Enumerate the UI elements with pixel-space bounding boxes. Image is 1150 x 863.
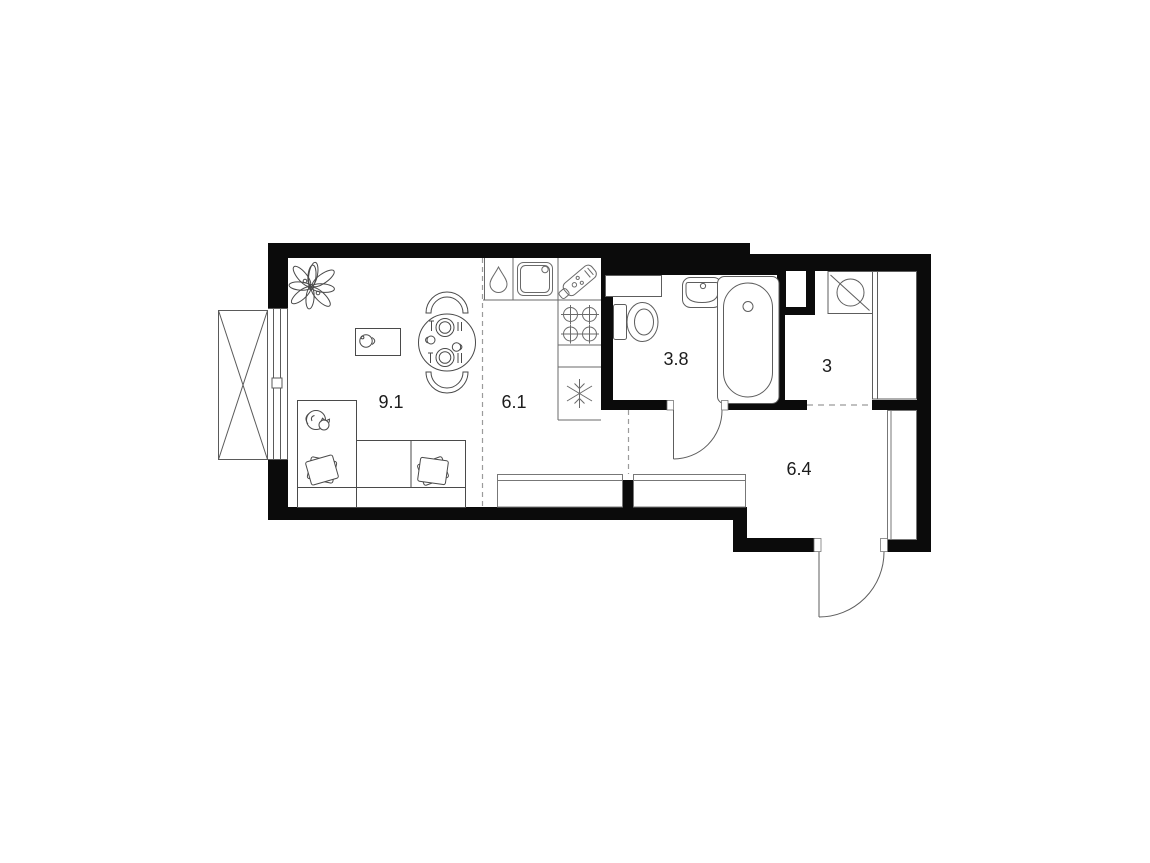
ventilation-shaft-interior: [786, 271, 806, 307]
pillow-right: [417, 456, 449, 486]
washbasin-icon: [683, 278, 722, 308]
room-label-bathroom: 3.8: [663, 349, 688, 369]
wall-right: [917, 254, 931, 552]
side-table: [356, 329, 401, 356]
bathroom-shelf: [606, 276, 662, 297]
closet-left: [498, 475, 623, 508]
hallway-wardrobe: [888, 411, 917, 540]
room-label-hallway: 6.4: [786, 459, 811, 479]
room-label-wardrobe: 3: [822, 356, 832, 376]
door-jamb: [722, 401, 729, 411]
door-jamb: [814, 539, 821, 552]
wall-room3-hall-stub: [872, 400, 917, 410]
washing-machine-icon: [828, 272, 873, 314]
wall-left-upper: [268, 243, 288, 308]
window-sash-divider: [272, 378, 282, 388]
closet-right: [634, 475, 746, 508]
wall-entrance-left: [747, 538, 815, 552]
toilet-icon: [614, 303, 659, 342]
canvas-background: [0, 0, 1150, 863]
wall-bottom-main: [268, 507, 747, 520]
room-label-kitchen: 6.1: [501, 392, 526, 412]
floor-plan: 9.1 6.1 3.8 3 6.4: [0, 0, 1150, 863]
door-jamb: [881, 539, 888, 552]
wardrobe-tall: [873, 272, 917, 400]
wall-bottom-step: [733, 507, 747, 552]
wall-top-left-section: [268, 243, 750, 258]
wall-bathroom-bulkhead: [601, 258, 785, 275]
wall-bathroom-bottom-left: [601, 400, 668, 410]
wall-closet-divider-stub: [623, 480, 633, 520]
bathtub-icon: [718, 277, 780, 404]
floor-plan-page: 9.1 6.1 3.8 3 6.4: [0, 0, 1150, 863]
door-jamb: [667, 401, 674, 411]
room-label-living: 9.1: [378, 392, 403, 412]
